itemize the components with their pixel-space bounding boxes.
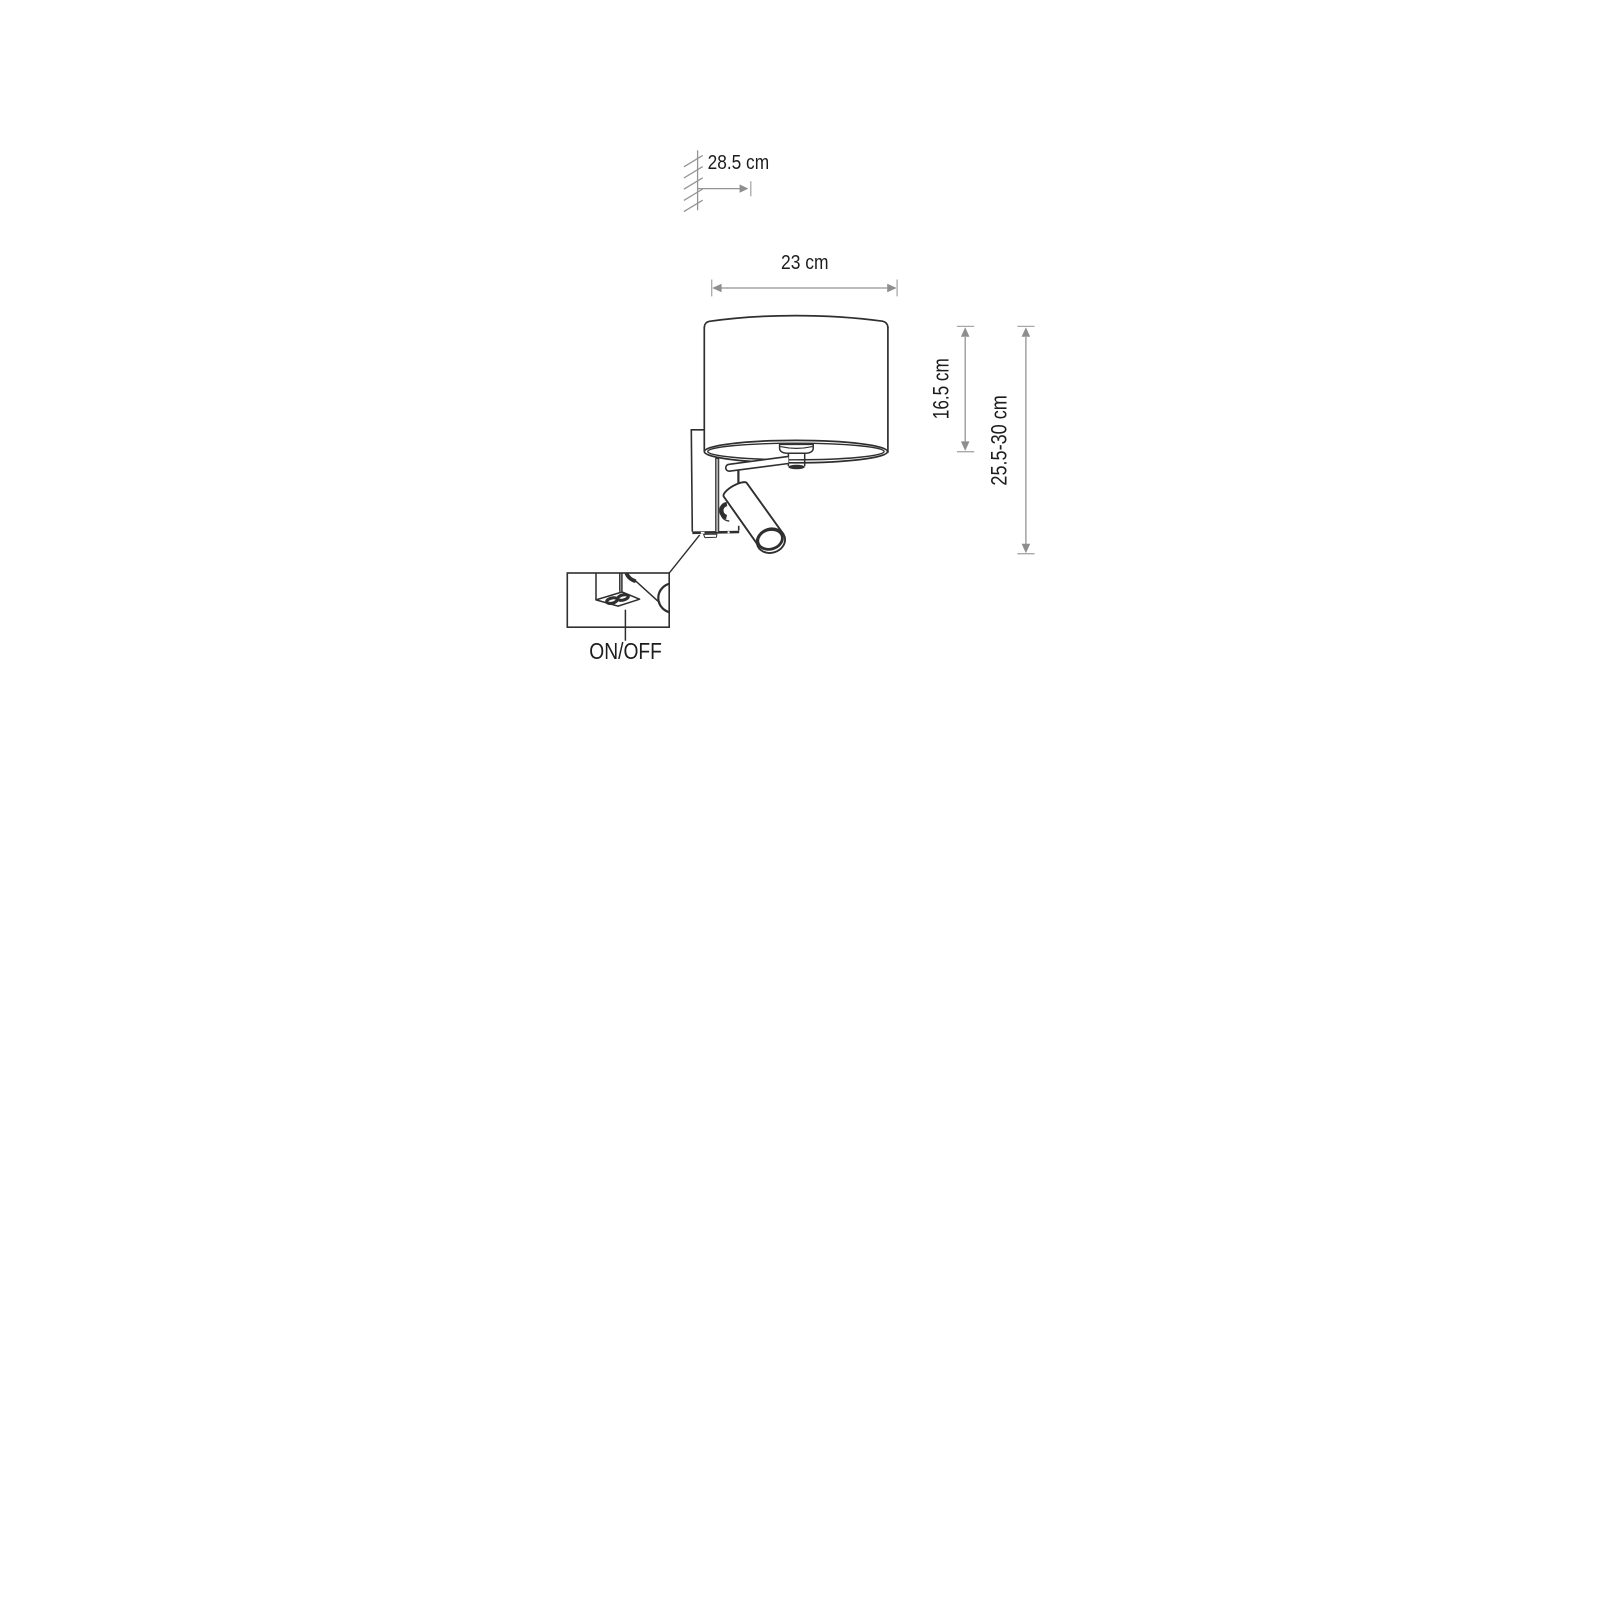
svg-text:23 cm: 23 cm <box>781 252 829 274</box>
svg-text:28.5 cm: 28.5 cm <box>708 152 770 174</box>
svg-text:25.5-30 cm: 25.5-30 cm <box>987 395 1012 485</box>
svg-text:ON/OFF: ON/OFF <box>589 638 662 664</box>
svg-text:16.5 cm: 16.5 cm <box>929 358 954 419</box>
